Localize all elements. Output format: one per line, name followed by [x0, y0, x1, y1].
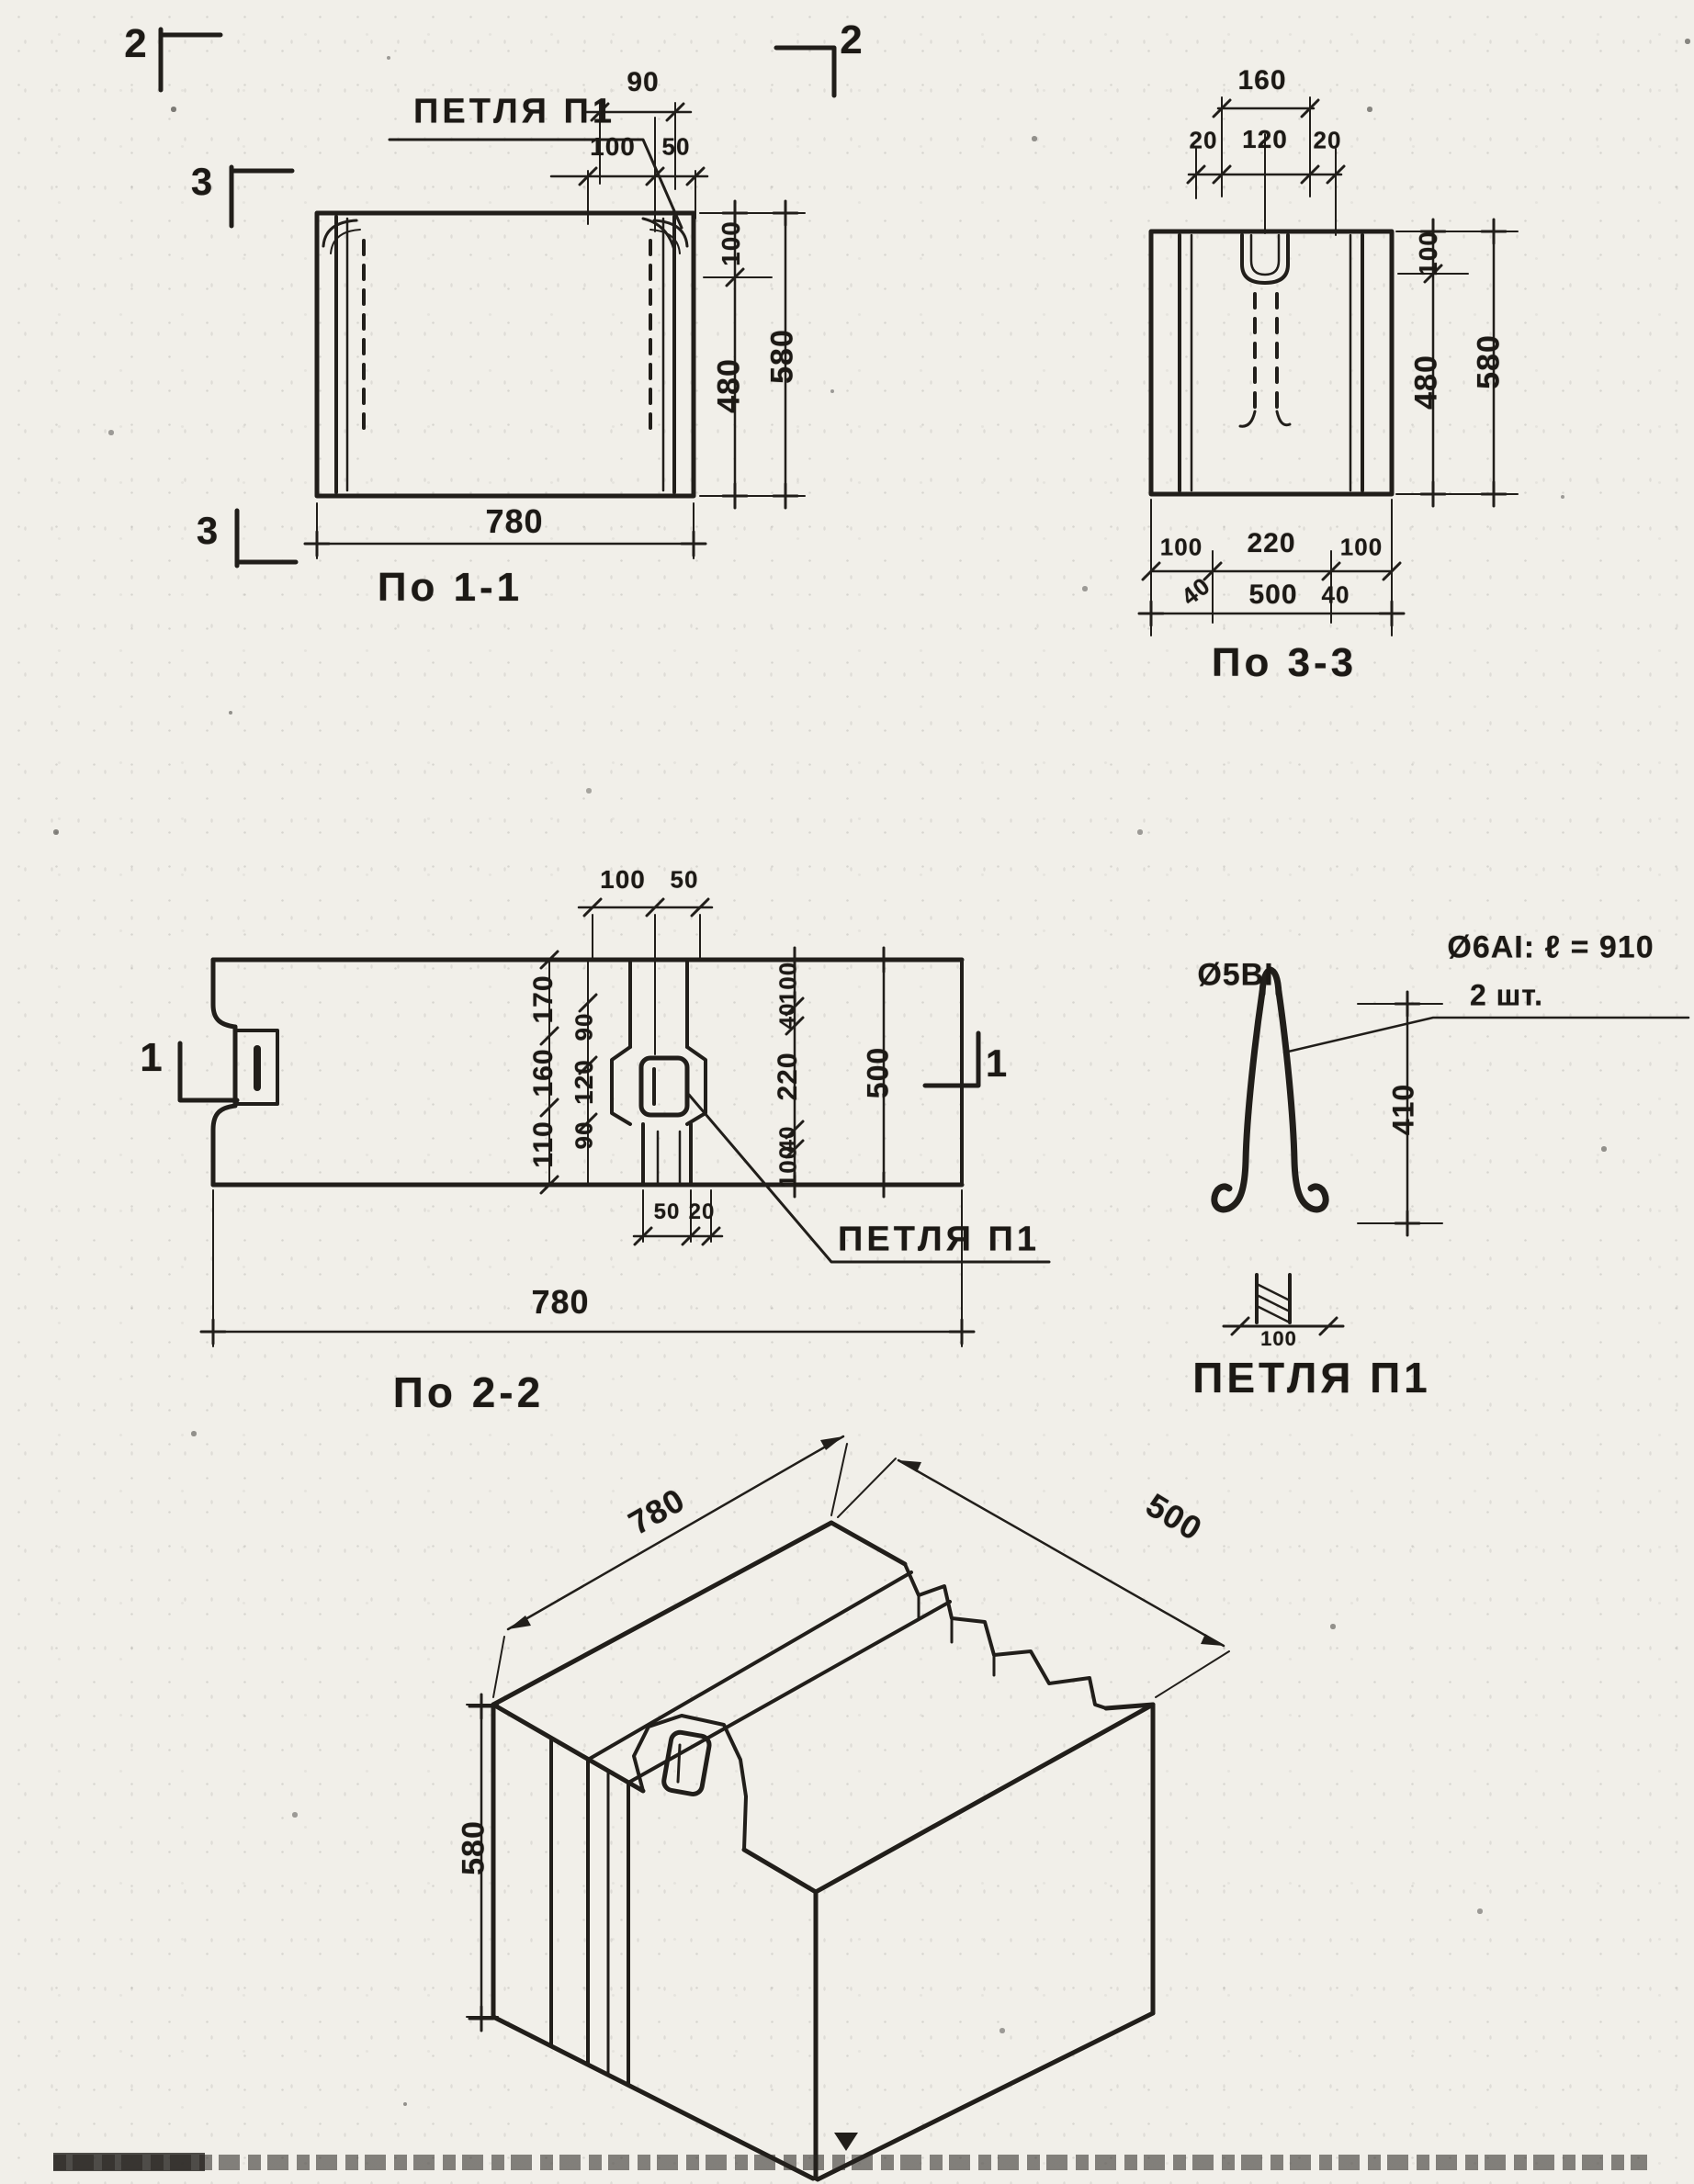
dim-label: 480 [1409, 355, 1445, 410]
scan-artifact-strip [53, 2155, 1647, 2170]
dim-label: 120 [1242, 125, 1288, 154]
dim-label: 50 [654, 1199, 681, 1225]
scan-artifact-strip-dark [53, 2153, 205, 2171]
view-caption-1-1: По 1-1 [378, 565, 523, 611]
dim-label: 220 [773, 1052, 804, 1100]
dim-label: 780 [485, 502, 543, 541]
section-marker-2-right: 2 [840, 17, 863, 63]
dim-label: 90 [570, 1121, 599, 1150]
dim-label: 170 [528, 974, 559, 1023]
dim-label: 20 [1190, 127, 1218, 155]
dim-label: 50 [671, 866, 699, 895]
dim-label: 90 [627, 67, 659, 98]
dim-label: 40 [1322, 581, 1350, 610]
dim-label: 100 [1340, 534, 1383, 562]
dim-label: 100 [600, 865, 646, 895]
view-caption-2-2: По 2-2 [393, 1368, 544, 1417]
loop-detail-view [1214, 970, 1688, 1334]
view-caption-loop-detail: ПЕТЛЯ П1 [1192, 1353, 1430, 1402]
section-marker-3-upper: 3 [191, 160, 213, 204]
dim-label: 120 [570, 1059, 599, 1105]
dim-label: 90 [570, 1013, 599, 1041]
dim-label: 100 [774, 962, 803, 1004]
loop-bar-spec-label: Ø5ВI [1197, 958, 1273, 994]
dim-label: 20 [1314, 127, 1342, 155]
dim-label: 580 [765, 329, 801, 384]
dim-label: 100 [774, 1145, 803, 1188]
dim-label: 110 [528, 1120, 559, 1167]
dim-label: 580 [1472, 334, 1508, 389]
dim-label: 100 [1260, 1327, 1297, 1351]
view-caption-3-3: По 3-3 [1212, 640, 1357, 686]
section-marker-2-left: 2 [124, 21, 147, 67]
section-marker-1-right: 1 [986, 1041, 1008, 1086]
loop-callout-label: ПЕТЛЯ П1 [413, 93, 615, 132]
dim-label: 500 [862, 1047, 896, 1098]
section-marker-1-left: 1 [140, 1035, 163, 1081]
dim-label: 480 [712, 358, 748, 413]
dim-label: 500 [1248, 580, 1297, 611]
dim-label: 100 [1160, 534, 1203, 562]
loop-callout-label: ПЕТЛЯ П1 [838, 1221, 1040, 1260]
loop-note-line2: 2 шт. [1470, 979, 1543, 1013]
section-2-2-view [180, 899, 1049, 1346]
dim-label: 20 [689, 1199, 716, 1225]
dim-label: 50 [662, 133, 691, 162]
dim-label: 100 [1414, 231, 1443, 276]
drawing-linework [0, 0, 1694, 2184]
isometric-view [467, 1436, 1229, 2179]
dim-label: 40 [775, 1003, 801, 1030]
loop-note-line1: Ø6АI: ℓ = 910 [1447, 930, 1654, 966]
dim-label: 160 [1237, 65, 1286, 96]
section-marker-3-lower: 3 [197, 509, 219, 553]
dim-label: 220 [1247, 528, 1295, 559]
dim-label: 580 [457, 1820, 492, 1875]
dim-label: 100 [590, 132, 636, 162]
dim-label: 160 [528, 1048, 559, 1097]
dim-label: 100 [717, 220, 746, 266]
dim-label: 780 [531, 1283, 589, 1322]
blueprint-sheet: 2 2 3 3 ПЕТЛЯ П1 90 100 50 100 480 580 7… [0, 0, 1694, 2184]
dim-label: 410 [1387, 1084, 1421, 1135]
